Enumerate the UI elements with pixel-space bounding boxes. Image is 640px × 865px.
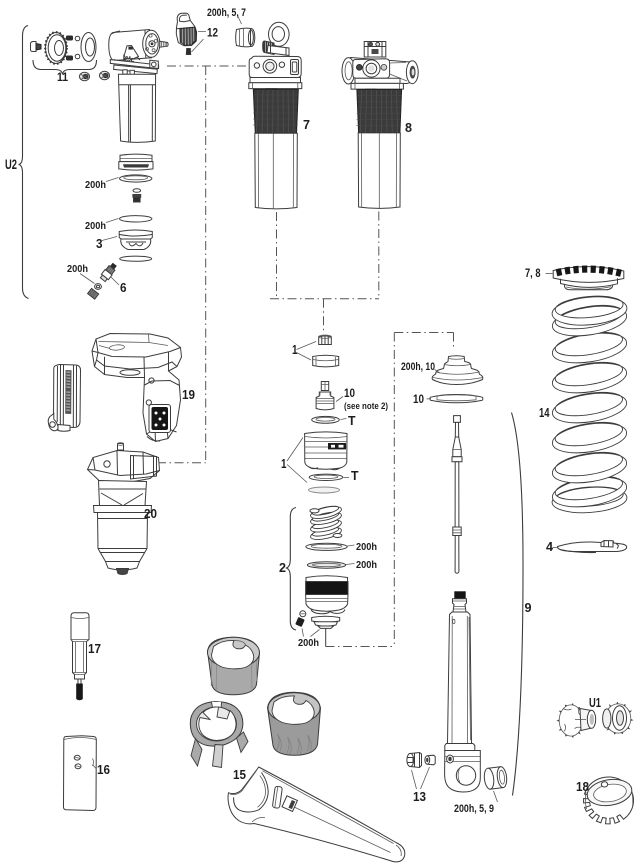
svg-text:13: 13 xyxy=(413,789,426,804)
svg-text:15: 15 xyxy=(233,767,246,782)
svg-text:3: 3 xyxy=(96,236,103,251)
svg-text:20: 20 xyxy=(144,506,157,521)
svg-text:8: 8 xyxy=(405,120,412,135)
svg-text:7, 8: 7, 8 xyxy=(525,268,541,280)
svg-text:7: 7 xyxy=(303,117,310,132)
svg-text:200h: 200h xyxy=(85,179,106,191)
svg-text:T: T xyxy=(351,469,359,483)
svg-text:200h: 200h xyxy=(356,559,377,571)
svg-text:9: 9 xyxy=(525,600,532,615)
svg-text:200h: 200h xyxy=(85,220,106,232)
svg-text:U1: U1 xyxy=(589,695,601,710)
svg-text:11: 11 xyxy=(57,72,69,84)
svg-text:6: 6 xyxy=(120,280,127,295)
svg-text:19: 19 xyxy=(182,387,195,402)
svg-text:10: 10 xyxy=(413,394,424,406)
svg-text:200h, 10: 200h, 10 xyxy=(401,361,435,373)
svg-text:14: 14 xyxy=(539,405,550,420)
svg-text:2: 2 xyxy=(279,560,286,575)
svg-text:200h: 200h xyxy=(67,263,88,275)
svg-text:4: 4 xyxy=(546,539,554,554)
svg-text:12: 12 xyxy=(207,28,218,40)
svg-text:17: 17 xyxy=(88,641,101,656)
svg-text:(see note 2): (see note 2) xyxy=(344,401,388,412)
svg-text:18: 18 xyxy=(576,779,589,794)
svg-text:T: T xyxy=(348,414,356,428)
svg-text:200h: 200h xyxy=(356,541,377,553)
svg-text:16: 16 xyxy=(97,762,110,777)
svg-text:1: 1 xyxy=(292,342,298,357)
svg-text:200h, 5, 7: 200h, 5, 7 xyxy=(207,7,246,19)
svg-text:200h, 5, 9: 200h, 5, 9 xyxy=(454,803,494,815)
svg-text:1: 1 xyxy=(281,456,287,471)
svg-text:U2: U2 xyxy=(5,157,17,172)
svg-text:200h: 200h xyxy=(298,637,319,649)
svg-text:10: 10 xyxy=(344,388,355,400)
